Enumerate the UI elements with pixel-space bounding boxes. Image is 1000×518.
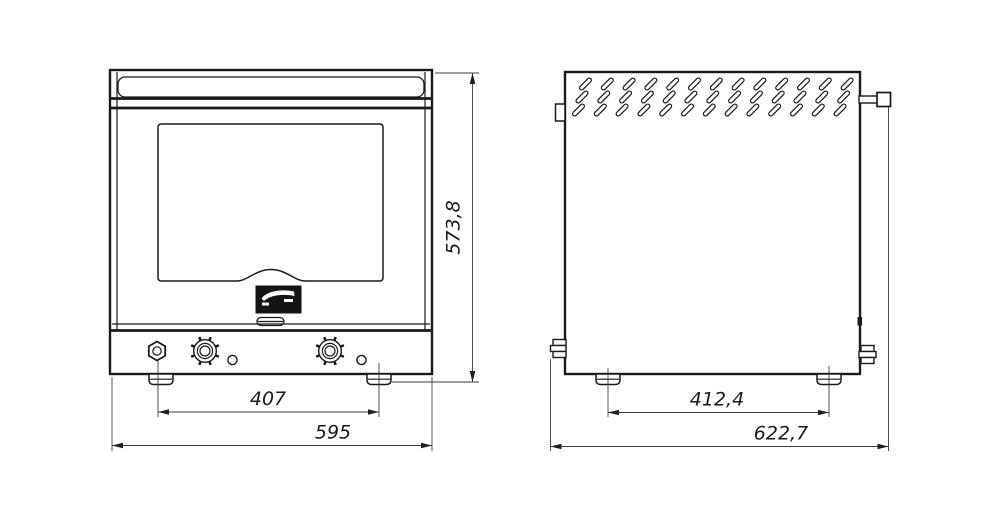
indicator-light-2 [357, 355, 366, 364]
handle-side-profile [859, 93, 891, 107]
door-window [158, 124, 383, 281]
hex-lamp [149, 342, 165, 361]
front-view [110, 70, 432, 385]
indicator-light-1 [228, 355, 237, 364]
dim-text-595: 595 [315, 422, 351, 444]
side-body-outline [565, 72, 860, 374]
dim-text-412-4: 412,4 [690, 389, 744, 411]
technical-drawing-canvas: 407 595 573,8 412,4 622,7 [0, 0, 1000, 518]
dim-text-573-8: 573,8 [443, 200, 465, 254]
hinge-notch [858, 317, 863, 326]
dim-text-407: 407 [250, 388, 286, 410]
rear-tab [556, 104, 566, 121]
brand-logo-icon [256, 286, 301, 313]
side-view [551, 72, 891, 385]
latch-side-profile [859, 346, 876, 364]
dim-text-622-7: 622,7 [754, 423, 808, 445]
cable-gland [551, 340, 567, 358]
oven-drawing: 407 595 573,8 412,4 622,7 [0, 0, 1000, 518]
front-foot-left [149, 374, 173, 385]
